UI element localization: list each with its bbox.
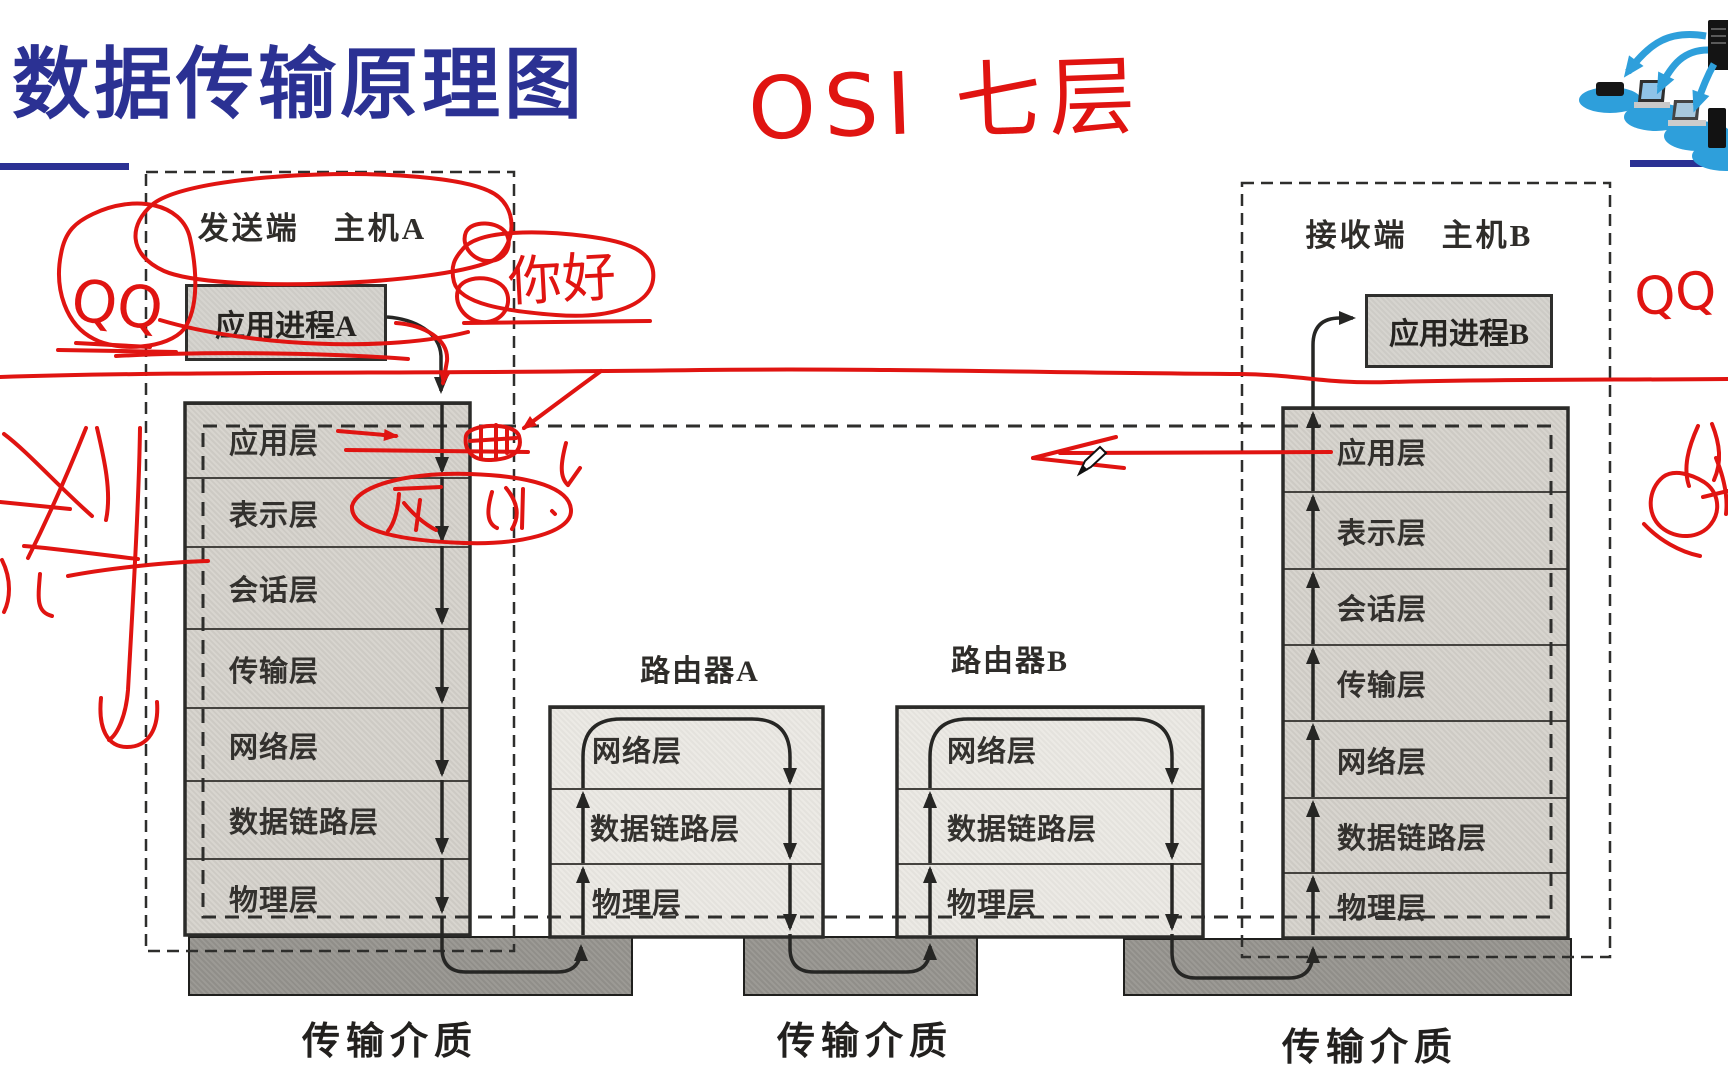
router-a-row3: 物理层 bbox=[550, 863, 823, 937]
slide-canvas: 数据传输原理图 发送端 主机A 应用进程A 应用层 表示层 会话层 传输层 网络… bbox=[0, 0, 1728, 1080]
ink-left-scribble-2 bbox=[28, 428, 86, 558]
router-a-row2: 数据链路层 bbox=[550, 788, 823, 863]
router-b-row3: 物理层 bbox=[897, 863, 1203, 937]
ink-oval-glyph-2a bbox=[488, 492, 497, 528]
ink-oval-glyph-2b bbox=[506, 488, 517, 529]
ink-long-horizontal-line bbox=[0, 370, 1728, 383]
ink-oval-dot bbox=[552, 511, 555, 514]
ink-greeting-blob bbox=[453, 232, 654, 315]
ink-small-circle-1 bbox=[465, 223, 509, 261]
layer-row-b6: 数据链路层 bbox=[1283, 797, 1568, 872]
ink-down-hook-1 bbox=[562, 443, 568, 485]
ink-qq-underline-2 bbox=[58, 350, 176, 352]
ink-diagonal-arrow bbox=[524, 371, 601, 428]
medium-bar-right bbox=[1123, 938, 1572, 996]
medium-label-left: 传输介质 bbox=[280, 1010, 500, 1065]
layer-row-b5: 网络层 bbox=[1283, 720, 1568, 797]
sender-header: 发送端 主机A bbox=[165, 203, 460, 248]
layer-row-b7: 物理层 bbox=[1283, 872, 1568, 938]
ink-down-hook-2 bbox=[568, 468, 580, 485]
layer-row-a1: 应用层 bbox=[185, 403, 470, 477]
ink-right-scribble-1 bbox=[1686, 426, 1698, 486]
router-b-row2: 数据链路层 bbox=[897, 788, 1203, 863]
greeting-text: 你好 bbox=[506, 245, 617, 314]
ink-left-scribble-1 bbox=[4, 434, 92, 516]
router-b-title: 路由器B bbox=[920, 636, 1100, 680]
medium-bar-middle bbox=[743, 936, 978, 996]
ink-circled-glyph-oval bbox=[466, 426, 520, 460]
ink-left-arrow-head-1 bbox=[1033, 437, 1116, 458]
ink-right-scribble-5 bbox=[1703, 491, 1728, 497]
layer-row-a3: 会话层 bbox=[185, 546, 470, 628]
process-box-b: 应用进程B bbox=[1365, 294, 1553, 368]
page-title: 数据传输原理图 bbox=[12, 22, 586, 134]
title-underline-right bbox=[1630, 160, 1728, 167]
layer-row-a2: 表示层 bbox=[185, 477, 470, 546]
ink-right-scribble-blob bbox=[1651, 473, 1717, 536]
network-icon bbox=[1579, 20, 1728, 171]
ink-left-scribble-6 bbox=[2, 560, 9, 612]
process-box-a: 应用进程A bbox=[185, 284, 387, 361]
title-underline-left bbox=[0, 163, 129, 170]
router-a-title: 路由器A bbox=[610, 646, 790, 690]
layer-row-a6: 数据链路层 bbox=[185, 780, 470, 858]
ink-left-vertical-stroke bbox=[109, 428, 140, 740]
ink-left-scribble-3 bbox=[0, 502, 70, 509]
medium-label-middle: 传输介质 bbox=[755, 1010, 975, 1065]
layer-row-a4: 传输层 bbox=[185, 628, 470, 707]
layer-row-b1: 应用层 bbox=[1283, 408, 1568, 491]
osi-note-text: OSI 七层 bbox=[746, 46, 1144, 160]
ink-small-circle-2 bbox=[457, 278, 508, 322]
qq-left-text: QQ bbox=[68, 266, 166, 343]
ink-oval-glyph-2c bbox=[522, 489, 523, 528]
qq-right-text: QQ bbox=[1632, 260, 1720, 328]
layer-row-a5: 网络层 bbox=[185, 707, 470, 780]
ink-left-scribble-4 bbox=[24, 546, 138, 559]
layer-row-b4: 传输层 bbox=[1283, 644, 1568, 720]
ink-left-scribble-7 bbox=[97, 428, 108, 520]
layer-row-b3: 会话层 bbox=[1283, 568, 1568, 644]
layer-row-b2: 表示层 bbox=[1283, 491, 1568, 568]
ink-left-scribble-5 bbox=[39, 574, 52, 616]
data-flow-arrows bbox=[387, 317, 1353, 978]
medium-bar-left bbox=[188, 936, 633, 996]
receiver-header: 接收端 主机B bbox=[1272, 210, 1567, 255]
ink-right-scribble-3 bbox=[1644, 524, 1700, 556]
router-b-row1: 网络层 bbox=[897, 707, 1203, 788]
ink-greeting-underline bbox=[464, 321, 650, 323]
layer-row-a7: 物理层 bbox=[185, 858, 470, 935]
ink-circled-glyph-s3 bbox=[470, 438, 516, 441]
ink-right-scribble-2 bbox=[1712, 424, 1719, 480]
ink-process-a-arrow bbox=[396, 323, 447, 383]
ink-qq-underline-1 bbox=[76, 343, 150, 347]
medium-label-right: 传输介质 bbox=[1260, 1016, 1480, 1071]
ink-left-bottom-hook bbox=[100, 698, 157, 747]
pen-cursor-icon bbox=[1079, 447, 1106, 474]
ink-left-arrow-head-2 bbox=[1033, 458, 1124, 468]
router-a-row1: 网络层 bbox=[550, 707, 823, 788]
ink-right-scribble-4 bbox=[1716, 458, 1727, 514]
